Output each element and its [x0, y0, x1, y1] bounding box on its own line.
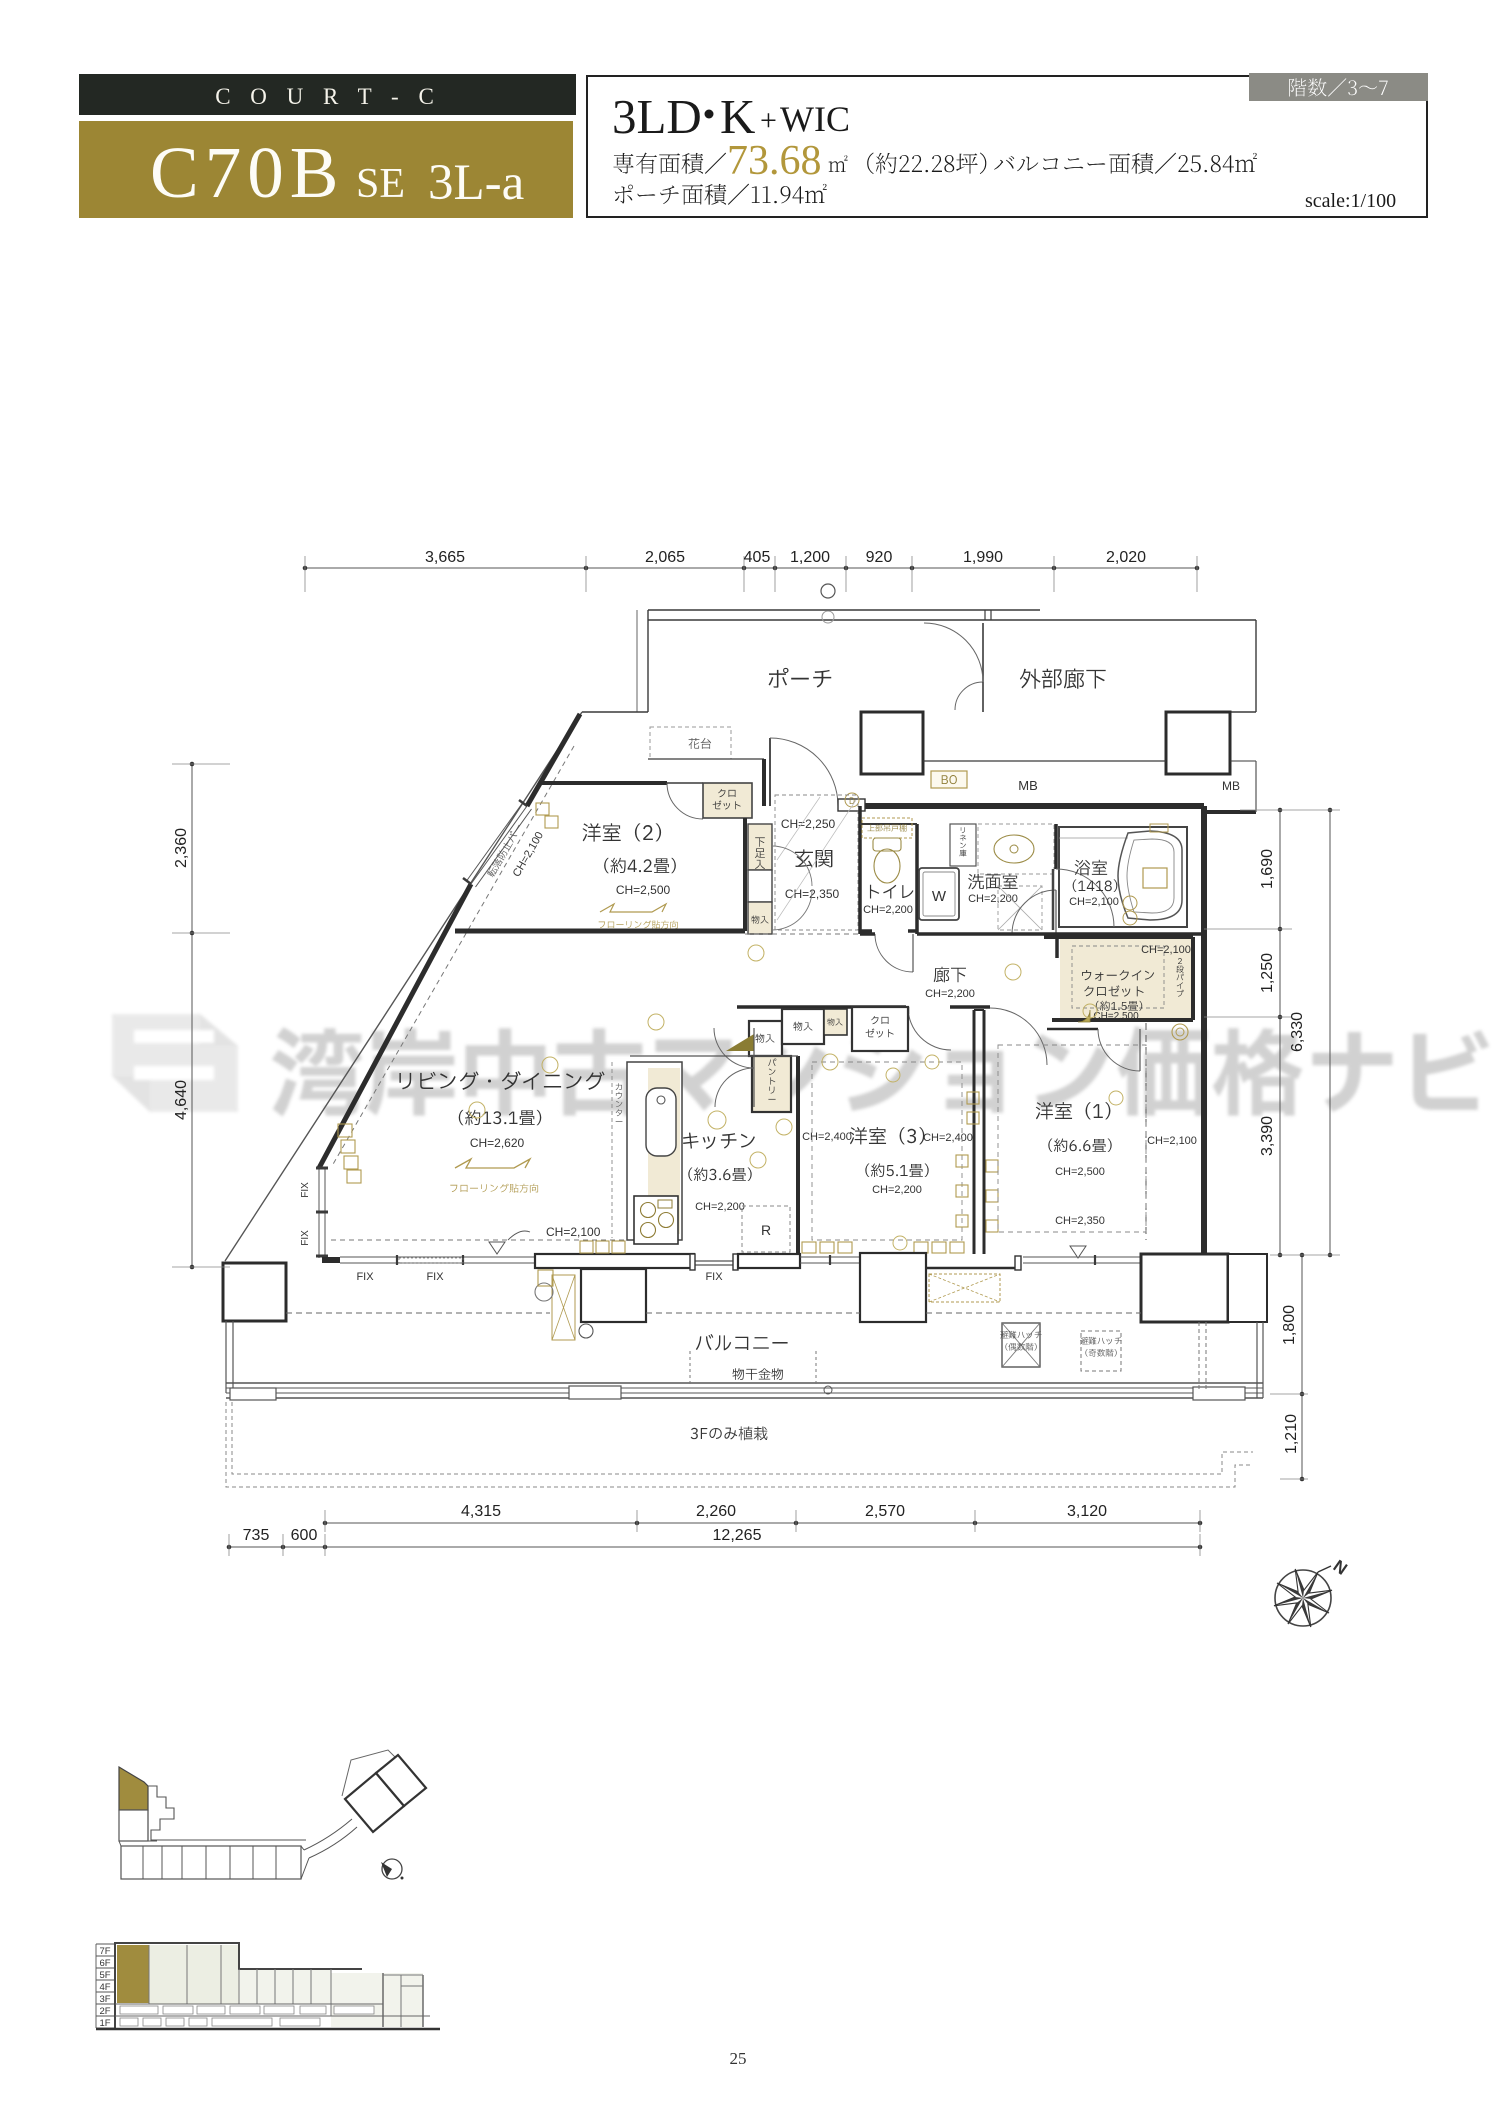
svg-text:CH=2,100: CH=2,100 — [511, 830, 546, 879]
svg-text:R: R — [761, 1222, 771, 1238]
svg-text:K: K — [720, 89, 755, 144]
svg-text:2,260: 2,260 — [696, 1503, 736, 1520]
svg-text:CH=2,400: CH=2,400 — [802, 1131, 852, 1143]
svg-text:3F: 3F — [99, 1994, 110, 2005]
svg-text:WIC: WIC — [780, 99, 850, 139]
svg-text:1,800: 1,800 — [1281, 1305, 1298, 1345]
svg-text:1F: 1F — [99, 2018, 110, 2029]
svg-text:CH=2,200: CH=2,200 — [925, 988, 975, 1000]
svg-text:1,200: 1,200 — [790, 549, 830, 566]
svg-text:2,065: 2,065 — [645, 549, 685, 566]
svg-text:2F: 2F — [99, 2006, 110, 2017]
svg-text:+: + — [760, 104, 777, 137]
svg-text:920: 920 — [866, 549, 893, 566]
svg-text:CH=2,350: CH=2,350 — [1055, 1215, 1105, 1227]
svg-text:CH=2,200: CH=2,200 — [872, 1184, 922, 1196]
svg-text:SE: SE — [356, 161, 405, 207]
svg-text:CH=2,100: CH=2,100 — [1141, 944, 1191, 956]
svg-text:405: 405 — [744, 549, 771, 566]
svg-text:1,690: 1,690 — [1259, 849, 1276, 889]
svg-text:6,330: 6,330 — [1289, 1012, 1306, 1052]
svg-text:2,020: 2,020 — [1106, 549, 1146, 566]
svg-text:FIX: FIX — [426, 1271, 444, 1283]
svg-text:25: 25 — [730, 2049, 747, 2068]
svg-text:4,640: 4,640 — [173, 1080, 190, 1120]
svg-text:7F: 7F — [99, 1946, 110, 1957]
svg-text:3L-a: 3L-a — [428, 155, 524, 211]
svg-text:FIX: FIX — [705, 1271, 723, 1283]
svg-text:3,120: 3,120 — [1067, 1503, 1107, 1520]
svg-text:MB: MB — [1222, 779, 1240, 793]
svg-text:CH=2,500: CH=2,500 — [1055, 1166, 1105, 1178]
svg-text:3LD: 3LD — [612, 89, 702, 144]
svg-text:scale:1/100: scale:1/100 — [1305, 190, 1396, 212]
svg-text:CH=2,200: CH=2,200 — [863, 904, 913, 916]
svg-text:FIX: FIX — [356, 1271, 374, 1283]
svg-text:6F: 6F — [99, 1958, 110, 1969]
svg-text:2,360: 2,360 — [173, 828, 190, 868]
svg-text:CH=2,500: CH=2,500 — [616, 883, 671, 897]
svg-text:C O U R T - C: C O U R T - C — [215, 84, 441, 109]
svg-text:5F: 5F — [99, 1970, 110, 1981]
svg-text:4,315: 4,315 — [461, 1503, 501, 1520]
svg-text:CH=2,100: CH=2,100 — [1147, 1135, 1197, 1147]
svg-text:CH=2,620: CH=2,620 — [470, 1136, 525, 1150]
svg-text:12,265: 12,265 — [713, 1527, 762, 1544]
svg-text:CH=2,100: CH=2,100 — [1069, 896, 1119, 908]
svg-text:C70B: C70B — [150, 132, 344, 213]
svg-text:4F: 4F — [99, 1982, 110, 1993]
svg-text:N: N — [1330, 1556, 1351, 1579]
svg-text:1,990: 1,990 — [963, 549, 1003, 566]
svg-text:CH=2,100: CH=2,100 — [546, 1225, 601, 1239]
svg-text:1,210: 1,210 — [1283, 1414, 1300, 1454]
svg-text:3,665: 3,665 — [425, 549, 465, 566]
svg-text:600: 600 — [291, 1527, 318, 1544]
svg-text:73.68: 73.68 — [727, 138, 822, 184]
svg-text:FIX: FIX — [300, 1230, 311, 1246]
svg-text:3,390: 3,390 — [1259, 1116, 1276, 1156]
svg-text:MB: MB — [1018, 778, 1038, 793]
svg-text:1,250: 1,250 — [1259, 953, 1276, 993]
svg-text:CH=2,250: CH=2,250 — [781, 817, 836, 831]
svg-text:CH=2,400: CH=2,400 — [923, 1132, 973, 1144]
svg-text:W: W — [932, 888, 947, 905]
svg-text:735: 735 — [243, 1527, 270, 1544]
svg-text:2,570: 2,570 — [865, 1503, 905, 1520]
svg-text:FIX: FIX — [300, 1182, 311, 1198]
svg-text:CH=2,500: CH=2,500 — [1093, 1011, 1139, 1022]
svg-text:CH=2,200: CH=2,200 — [695, 1201, 745, 1213]
